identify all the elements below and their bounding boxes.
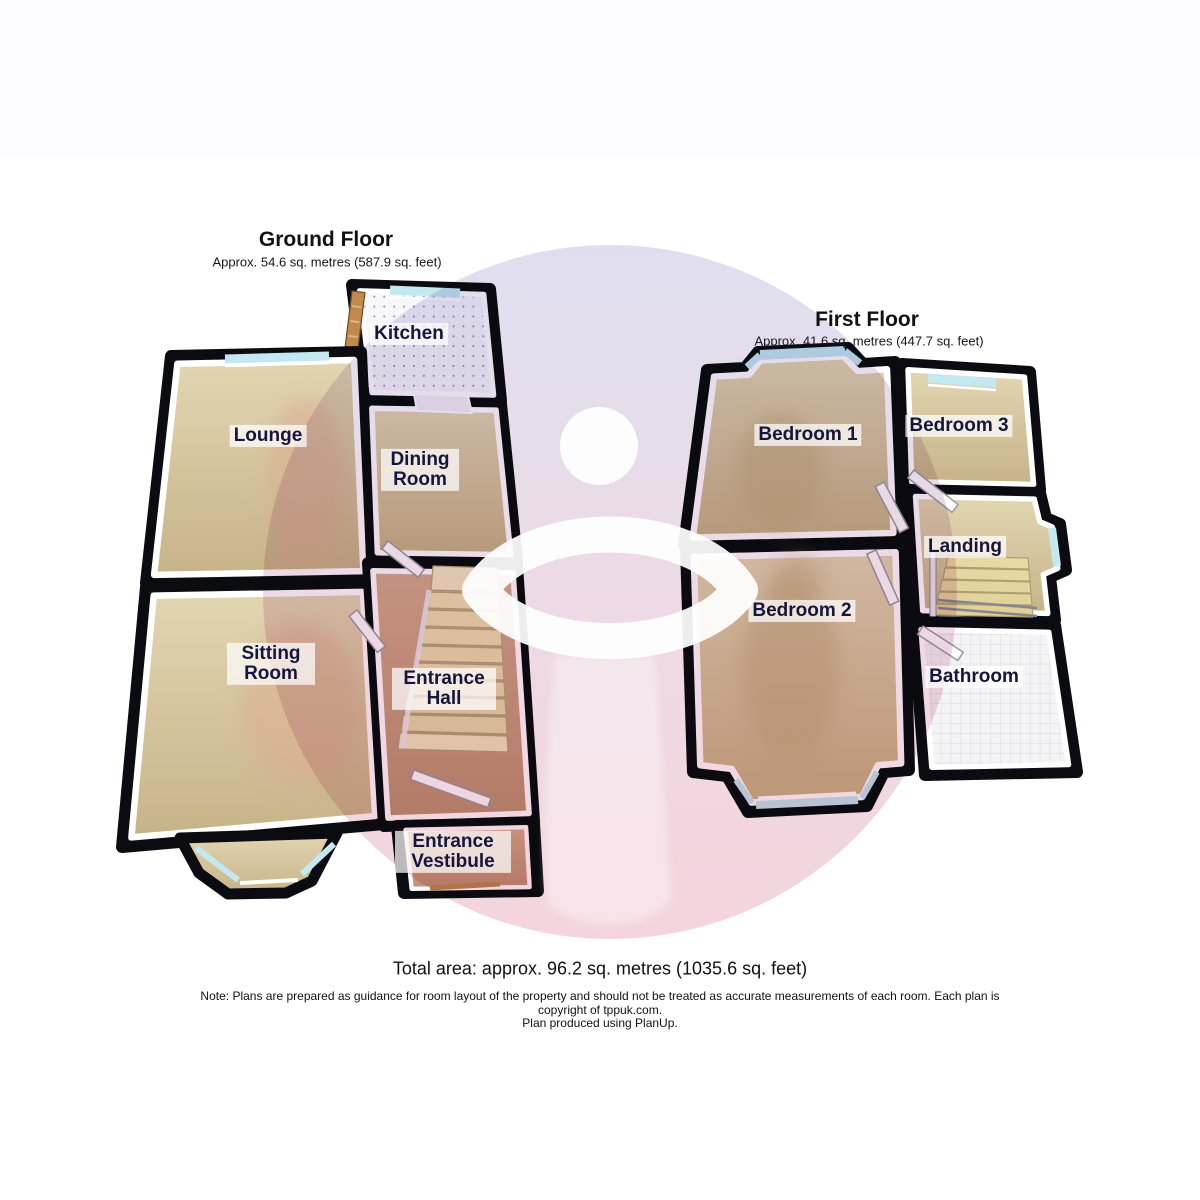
label-bedroom-2: Bedroom 2 — [748, 600, 855, 622]
first-floor-title: First Floor — [815, 308, 919, 332]
ground-floor-area: Approx. 54.6 sq. metres (587.9 sq. feet) — [212, 255, 441, 270]
label-sitting-room: Sitting Room — [227, 643, 315, 685]
label-bedroom-3: Bedroom 3 — [905, 415, 1012, 437]
watermark — [263, 245, 957, 939]
ground-floor-title: Ground Floor — [259, 228, 393, 252]
label-landing: Landing — [924, 536, 1006, 558]
first-floor-area: Approx. 41.6 sq. metres (447.7 sq. feet) — [754, 334, 983, 349]
label-bedroom-1: Bedroom 1 — [754, 424, 861, 446]
label-entrance-hall: Entrance Hall — [392, 668, 496, 710]
landing-window — [1052, 528, 1057, 566]
label-lounge: Lounge — [230, 425, 307, 447]
note-line-3: Plan produced using PlanUp. — [522, 1016, 677, 1030]
floorplan-page: Ground Floor Approx. 54.6 sq. metres (58… — [0, 0, 1200, 1200]
label-bathroom: Bathroom — [925, 666, 1023, 688]
lounge-window — [225, 356, 329, 359]
label-kitchen: Kitchen — [370, 323, 448, 345]
bedroom3-window — [928, 378, 996, 383]
label-entrance-vestibule: Entrance Vestibule — [395, 831, 511, 873]
total-area-text: Total area: approx. 96.2 sq. metres (103… — [393, 959, 807, 980]
label-dining-room: Dining Room — [381, 449, 459, 491]
background-band — [0, 0, 1200, 158]
note-line-2: copyright of tppuk.com. — [538, 1003, 662, 1017]
sitting-bay-window — [180, 833, 337, 894]
note-line-1: Note: Plans are prepared as guidance for… — [200, 989, 999, 1003]
